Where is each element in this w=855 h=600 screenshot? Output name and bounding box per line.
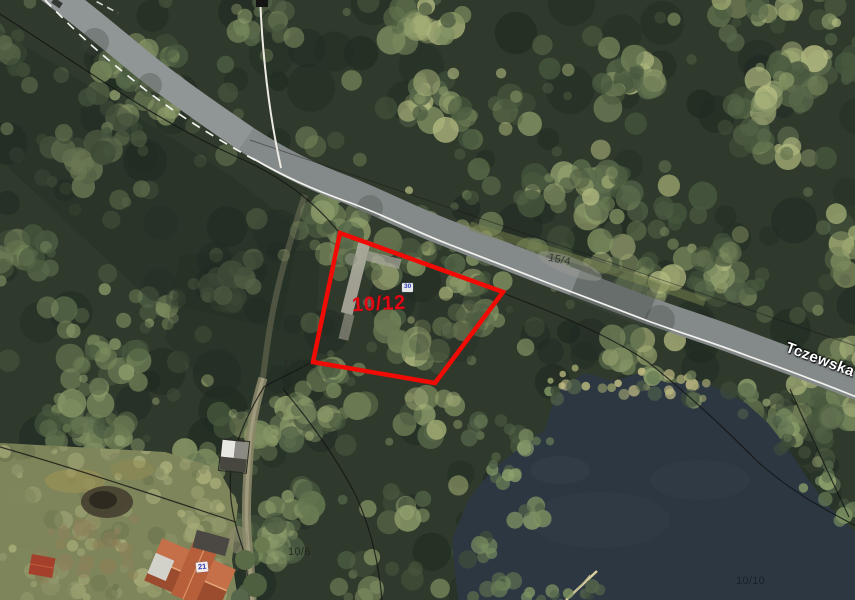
soil-patch-core [89, 491, 117, 509]
garden-bush [235, 550, 255, 570]
water-sheen [650, 460, 750, 500]
dry-grass-patch [110, 460, 154, 480]
shed [218, 439, 249, 474]
map-canvas[interactable]: 15/4 10/13 10/6 10/10 10/12 Tczewska 30 … [0, 0, 855, 600]
tree-shadow-on-road [357, 195, 383, 221]
tree-shadow-on-road [645, 305, 675, 335]
tree-shadow-on-road [138, 73, 162, 97]
water-sheen [530, 456, 590, 484]
red-shed [28, 554, 55, 578]
tree-shadow-on-road [81, 28, 109, 56]
survey-marker [256, 0, 268, 7]
garden-bush [254, 537, 270, 553]
